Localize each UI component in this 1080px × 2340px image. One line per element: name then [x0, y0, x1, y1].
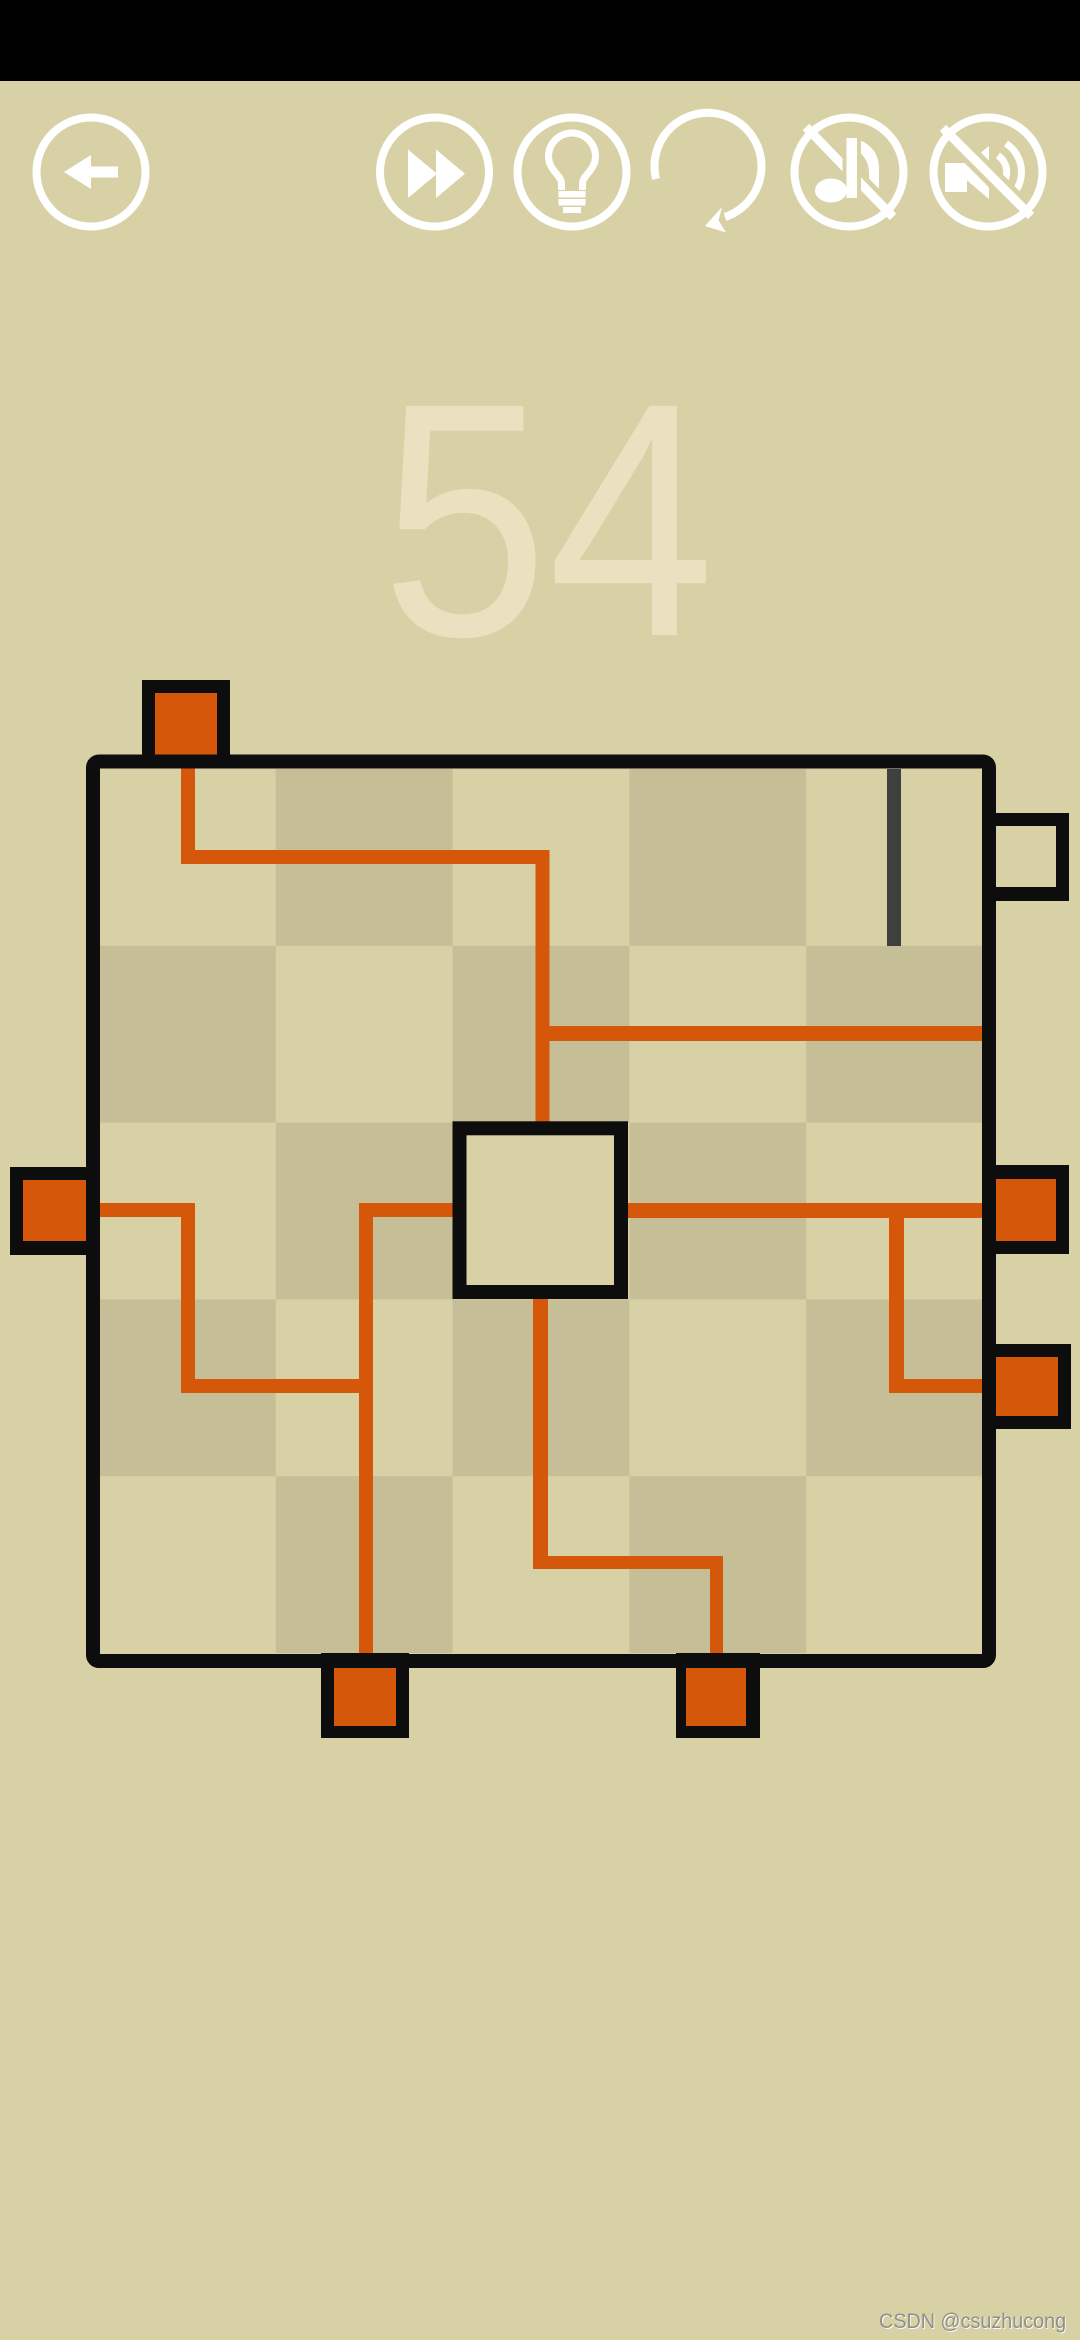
svg-text:CSDN @csuzhucong: CSDN @csuzhucong — [879, 2309, 1066, 2333]
svg-text:54: 54 — [381, 334, 714, 706]
